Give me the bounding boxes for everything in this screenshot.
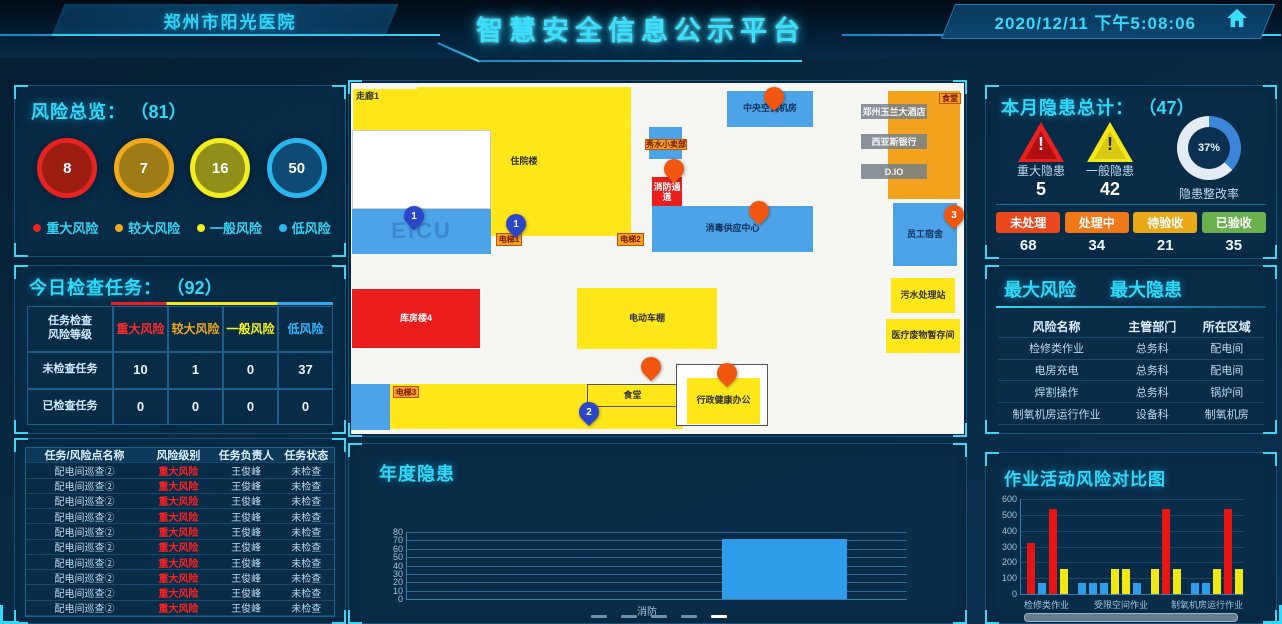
- task-owner: 王俊峰: [214, 494, 279, 509]
- rectification-rate-donut: 37%: [1177, 116, 1241, 180]
- activity-group-label: 检修类作业: [1024, 598, 1069, 611]
- activity-group-label: 制氧机房运行作业: [1171, 598, 1243, 611]
- activity-bar: [1100, 583, 1108, 594]
- general-hazard-value: 42: [1081, 179, 1139, 200]
- area: 锅炉间: [1190, 381, 1264, 403]
- map-block-食堂: 食堂: [587, 384, 678, 407]
- task-count: 0: [223, 389, 278, 426]
- risk-level: 重大风险: [143, 540, 214, 555]
- activity-bar: [1173, 569, 1181, 594]
- corner-accent: [1263, 605, 1282, 624]
- map-pin-marker[interactable]: [660, 155, 688, 183]
- risk-name: 检修类作业: [998, 338, 1115, 360]
- row-label: 已检查任务: [27, 389, 113, 426]
- map-block-医疗废物暂存间: 医疗废物暂存间: [886, 319, 960, 353]
- badge-pill: 未处理: [996, 212, 1060, 233]
- panel-corner: [985, 265, 999, 279]
- panel-corner: [1263, 265, 1277, 279]
- badge-value: 21: [1157, 237, 1174, 254]
- chart-scrollbar[interactable]: [1024, 613, 1238, 622]
- risk-legend-item: 低风险: [279, 218, 331, 237]
- corner-accent: [0, 605, 19, 624]
- task-status: 未检查: [279, 555, 334, 570]
- map-pin-marker[interactable]: [713, 359, 741, 387]
- activity-bar: [1122, 569, 1130, 594]
- map-block-行政健康办公: 行政健康办公: [687, 378, 760, 424]
- home-icon[interactable]: [1226, 8, 1248, 28]
- panel-corner: [14, 265, 28, 279]
- row-label: 未检查任务: [27, 352, 113, 389]
- top-header: 郑州市阳光医院 智慧安全信息公示平台 2020/12/11 下午5:08:06: [0, 0, 1282, 58]
- general-hazard-label: 一般隐患: [1081, 162, 1139, 179]
- legend-dot: [197, 224, 205, 232]
- task-name: 配电间巡查②: [26, 524, 143, 539]
- panel-corner: [332, 610, 346, 624]
- task-name: 配电间巡查②: [26, 479, 143, 494]
- area: 制氧机房: [1190, 403, 1264, 425]
- map-pin-marker[interactable]: 3: [940, 201, 964, 229]
- legend-label: 较大风险: [128, 218, 180, 237]
- map-tag-电梯3: 电梯3: [393, 386, 419, 398]
- map-legend-西亚斯银行: 西亚斯银行: [861, 134, 927, 149]
- risk-circle-较大风险: 7: [114, 138, 174, 198]
- risk-name: 制氧机房运行作业: [998, 403, 1115, 425]
- status-badge-待验收: 待验收21: [1133, 212, 1197, 254]
- map-pin-marker[interactable]: [760, 83, 788, 111]
- map-block-消防通道: 消防通道: [652, 177, 682, 209]
- tab-underline: [996, 306, 1266, 308]
- rectification-rate-label: 隐患整改率: [1164, 185, 1254, 202]
- risk-circle-重大风险: 8: [37, 138, 97, 198]
- badge-pill: 待验收: [1133, 212, 1197, 233]
- area: 配电间: [1190, 338, 1264, 360]
- task-name: 配电间巡查②: [26, 570, 143, 585]
- gridline: [1021, 499, 1243, 500]
- map-legend-D.IO: D.IO: [861, 164, 927, 179]
- dept: 设备科: [1115, 403, 1189, 425]
- panel-corner: [332, 438, 346, 452]
- map-pin-marker[interactable]: 1: [502, 210, 530, 238]
- task-status: 未检查: [279, 494, 334, 509]
- map-tag-食堂: 食堂: [939, 93, 961, 104]
- task-status: 未检查: [279, 601, 334, 616]
- activity-bar: [1162, 509, 1170, 595]
- task-status: 未检查: [279, 540, 334, 555]
- task-count: 0: [278, 389, 333, 426]
- risk-overview-panel: 风险总览： （81） 871650 重大风险较大风险一般风险低风险: [14, 85, 346, 257]
- col-header-重大风险: 重大风险: [113, 306, 168, 352]
- task-owner: 王俊峰: [214, 479, 279, 494]
- activity-bar: [1027, 543, 1035, 594]
- task-status: 未检查: [279, 509, 334, 524]
- task-name: 配电间巡查②: [26, 494, 143, 509]
- map-block-消毒供应中心: 消毒供应中心: [652, 206, 813, 252]
- badge-value: 35: [1225, 237, 1242, 254]
- task-name: 配电间巡查②: [26, 509, 143, 524]
- task-count: 37: [278, 352, 333, 389]
- panel-corner: [1263, 452, 1277, 466]
- monthly-hazard-panel: 本月隐患总计： （47） ! 重大隐患 5 ! 一般隐患 42 37% 隐患整改…: [985, 85, 1277, 259]
- tab-max-hazard[interactable]: 最大隐患: [1110, 276, 1182, 302]
- risk-level: 重大风险: [143, 509, 214, 524]
- task-count: 0: [113, 389, 168, 426]
- panel-corner: [985, 85, 999, 99]
- pager-dash[interactable]: [591, 615, 607, 618]
- panel-corner: [332, 420, 346, 434]
- risk-level: 重大风险: [143, 494, 214, 509]
- panel-corner: [985, 245, 999, 259]
- major-hazard-label: 重大隐患: [1012, 162, 1070, 179]
- area: 配电间: [1190, 360, 1264, 382]
- rectification-rate-percent: 37%: [1177, 116, 1241, 180]
- toprisk-header: 风险名称: [998, 316, 1115, 338]
- legend-label: 重大风险: [46, 218, 98, 237]
- today-tasks-table: 任务检查风险等级重大风险较大风险一般风险低风险未检查任务101037已检查任务0…: [27, 306, 333, 425]
- gridline: [407, 532, 907, 533]
- panel-corner: [985, 452, 999, 466]
- map-legend-郑州玉兰大酒店: 郑州玉兰大酒店: [861, 104, 927, 119]
- dept: 总务科: [1115, 360, 1189, 382]
- hospital-map-panel: 走廊1住院楼EICU中央空调机房消防通道消毒供应中心员工宿舍污水处理站医疗废物暂…: [348, 80, 967, 437]
- activity-bar: [1191, 583, 1199, 594]
- map-pin-marker[interactable]: [745, 197, 773, 225]
- activity-bar: [1078, 583, 1086, 594]
- major-hazard-value: 5: [1012, 179, 1070, 200]
- panel-corner: [14, 85, 28, 99]
- panel-corner: [348, 80, 362, 94]
- badge-value: 34: [1088, 237, 1105, 254]
- task-owner: 王俊峰: [214, 509, 279, 524]
- legend-dot: [33, 224, 41, 232]
- detail-header: 任务负责人: [214, 448, 279, 463]
- task-owner: 王俊峰: [214, 601, 279, 616]
- task-detail-panel: 任务/风险点名称风险级别任务负责人任务状态配电间巡查②重大风险王俊峰未检查配电间…: [14, 438, 346, 624]
- panel-corner: [348, 423, 362, 437]
- panel-corner: [332, 243, 346, 257]
- corner-top: 任务检查: [48, 315, 92, 329]
- risk-legend-item: 一般风险: [197, 218, 262, 237]
- panel-corner: [1263, 420, 1277, 434]
- task-count: 10: [113, 352, 168, 389]
- risk-name: 电房充电: [998, 360, 1115, 382]
- y-tick-label: 100: [1002, 573, 1017, 583]
- y-tick-label: 400: [1002, 526, 1017, 536]
- major-hazard-warning-icon: !: [1018, 122, 1064, 162]
- panel-corner: [332, 265, 346, 279]
- task-status: 未检查: [279, 463, 334, 478]
- top-risk-panel: 最大风险 最大隐患 风险名称主管部门所在区域检修类作业总务科配电间电房充电总务科…: [985, 265, 1277, 434]
- task-count: 1: [168, 352, 223, 389]
- task-owner: 王俊峰: [214, 570, 279, 585]
- annual-bar-消防: [722, 539, 847, 599]
- panel-corner: [953, 610, 967, 624]
- map-tag-电梯2: 电梯2: [617, 233, 644, 246]
- annual-hazard-title: 年度隐患: [379, 460, 455, 486]
- tab-max-risk[interactable]: 最大风险: [1004, 276, 1076, 302]
- panel-corner: [332, 85, 346, 99]
- activity-bar: [1133, 583, 1141, 594]
- status-badge-未处理: 未处理68: [996, 212, 1060, 254]
- task-name: 配电间巡查②: [26, 585, 143, 600]
- panel-corner: [953, 80, 967, 94]
- map-block-area: [352, 130, 491, 209]
- risk-legend-item: 重大风险: [33, 218, 98, 237]
- task-name: 配电间巡查②: [26, 601, 143, 616]
- y-tick-label: 200: [1002, 557, 1017, 567]
- monthly-hazard-total: （47）: [1138, 98, 1194, 118]
- risk-circle-低风险: 50: [267, 138, 327, 198]
- corner-bottom: 风险等级: [48, 329, 92, 343]
- panel-corner: [14, 420, 28, 434]
- map-block-电动车棚: 电动车棚: [577, 288, 717, 349]
- map-pin-marker[interactable]: [637, 353, 665, 381]
- panel-corner: [14, 438, 28, 452]
- activity-risk-panel: 作业活动风险对比图 0100200300400500600 检修类作业受限空间作…: [985, 452, 1277, 624]
- activity-bar: [1111, 569, 1119, 594]
- header-divider: [480, 60, 802, 62]
- task-count: 0: [223, 352, 278, 389]
- badge-pill: 处理中: [1065, 212, 1129, 233]
- col-header-较大风险: 较大风险: [168, 306, 223, 352]
- y-tick-label: 0: [1012, 589, 1017, 599]
- task-name: 配电间巡查②: [26, 555, 143, 570]
- pager-dash[interactable]: [711, 615, 727, 618]
- y-tick-label: 80: [393, 527, 403, 537]
- activity-bar: [1202, 583, 1210, 594]
- activity-bar: [1151, 569, 1159, 594]
- activity-risk-title: 作业活动风险对比图: [1004, 465, 1166, 490]
- task-status: 未检查: [279, 585, 334, 600]
- datetime: 2020/12/11 下午5:08:06: [995, 9, 1196, 34]
- risk-legend-item: 较大风险: [115, 218, 180, 237]
- task-name: 配电间巡查②: [26, 463, 143, 478]
- panel-corner: [348, 610, 362, 624]
- task-status: 未检查: [279, 524, 334, 539]
- panel-corner: [1263, 85, 1277, 99]
- risk-level: 重大风险: [143, 463, 214, 478]
- risk-level: 重大风险: [143, 601, 214, 616]
- legend-label: 低风险: [292, 218, 331, 237]
- status-badge-已验收: 已验收35: [1202, 212, 1266, 254]
- map-block-污水处理站: 污水处理站: [891, 278, 955, 313]
- activity-bar: [1213, 569, 1221, 594]
- map-tag-秀水小卖部: 秀水小卖部: [645, 139, 687, 150]
- today-tasks-total: （92）: [166, 278, 222, 298]
- legend-dot: [279, 224, 287, 232]
- panel-corner: [1263, 245, 1277, 259]
- general-hazard-warning-icon: !: [1087, 122, 1133, 162]
- legend-label: 一般风险: [210, 218, 262, 237]
- hospital-floor-map: 走廊1住院楼EICU中央空调机房消防通道消毒供应中心员工宿舍污水处理站医疗废物暂…: [351, 83, 964, 434]
- badge-value: 68: [1020, 237, 1037, 254]
- annual-hazard-chart: 01020304050607080消防: [406, 532, 907, 600]
- dept: 总务科: [1115, 338, 1189, 360]
- annual-hazard-panel: 年度隐患 01020304050607080消防: [348, 443, 967, 624]
- legend-dot: [115, 224, 123, 232]
- panel-corner: [14, 243, 28, 257]
- hazard-status-badges: 未处理68处理中34待验收21已验收35: [994, 212, 1268, 254]
- task-owner: 王俊峰: [214, 585, 279, 600]
- risk-circles: 871650: [29, 138, 335, 198]
- panel-corner: [985, 610, 999, 624]
- activity-risk-chart: 0100200300400500600: [1020, 499, 1243, 595]
- toprisk-header: 所在区域: [1190, 316, 1264, 338]
- panel-corner: [953, 443, 967, 457]
- y-tick-label: 300: [1002, 542, 1017, 552]
- panel-corner: [348, 443, 362, 457]
- activity-bar: [1049, 509, 1057, 595]
- corner-cell: 任务检查风险等级: [27, 306, 113, 352]
- risk-name: 焊割操作: [998, 381, 1115, 403]
- task-count: 0: [168, 389, 223, 426]
- task-name: 配电间巡查②: [26, 540, 143, 555]
- risk-level: 重大风险: [143, 524, 214, 539]
- map-block-库房楼4: 库房楼4: [352, 289, 480, 348]
- risk-circle-一般风险: 16: [190, 138, 250, 198]
- risk-overview-title: 风险总览：: [31, 102, 126, 122]
- detail-header: 任务/风险点名称: [26, 448, 143, 463]
- status-badge-处理中: 处理中34: [1065, 212, 1129, 254]
- col-header-低风险: 低风险: [278, 306, 333, 352]
- activity-bar: [1224, 509, 1232, 595]
- pager-dash[interactable]: [681, 615, 697, 618]
- dept: 总务科: [1115, 381, 1189, 403]
- risk-level: 重大风险: [143, 479, 214, 494]
- today-tasks-title: 今日检查任务：: [29, 278, 162, 298]
- task-detail-table: 任务/风险点名称风险级别任务负责人任务状态配电间巡查②重大风险王俊峰未检查配电间…: [25, 447, 335, 617]
- y-tick-label: 600: [1002, 494, 1017, 504]
- map-pin-marker[interactable]: 2: [575, 398, 603, 426]
- risk-level: 重大风险: [143, 585, 214, 600]
- activity-bar: [1038, 583, 1046, 594]
- panel-corner: [953, 423, 967, 437]
- today-tasks-panel: 今日检查任务： （92） 任务检查风险等级重大风险较大风险一般风险低风险未检查任…: [14, 265, 346, 434]
- pager-dash[interactable]: [621, 615, 637, 618]
- panel-corner: [985, 420, 999, 434]
- top-risk-table: 风险名称主管部门所在区域检修类作业总务科配电间电房充电总务科配电间焊割操作总务科…: [998, 316, 1264, 425]
- task-status: 未检查: [279, 479, 334, 494]
- risk-level: 重大风险: [143, 555, 214, 570]
- detail-header: 风险级别: [143, 448, 214, 463]
- task-owner: 王俊峰: [214, 540, 279, 555]
- risk-overview-total: （81）: [130, 102, 186, 122]
- monthly-hazard-title: 本月隐患总计：: [1001, 98, 1134, 118]
- task-status: 未检查: [279, 570, 334, 585]
- col-header-一般风险: 一般风险: [223, 306, 278, 352]
- map-pin-marker[interactable]: 1: [400, 202, 428, 230]
- task-owner: 王俊峰: [214, 463, 279, 478]
- badge-pill: 已验收: [1202, 212, 1266, 233]
- divider: [996, 204, 1266, 205]
- task-owner: 王俊峰: [214, 524, 279, 539]
- activity-bar: [1235, 569, 1243, 594]
- detail-header: 任务状态: [279, 448, 334, 463]
- toprisk-header: 主管部门: [1115, 316, 1189, 338]
- activity-group-label: 受限空间作业: [1094, 598, 1148, 611]
- task-owner: 王俊峰: [214, 555, 279, 570]
- activity-bar: [1060, 569, 1068, 594]
- risk-legend: 重大风险较大风险一般风险低风险: [25, 218, 339, 237]
- risk-level-colorbar: [111, 302, 333, 305]
- y-tick-label: 500: [1002, 510, 1017, 520]
- risk-level: 重大风险: [143, 570, 214, 585]
- activity-bar: [1089, 583, 1097, 594]
- annual-chart-pager: [591, 615, 727, 618]
- pager-dash[interactable]: [651, 615, 667, 618]
